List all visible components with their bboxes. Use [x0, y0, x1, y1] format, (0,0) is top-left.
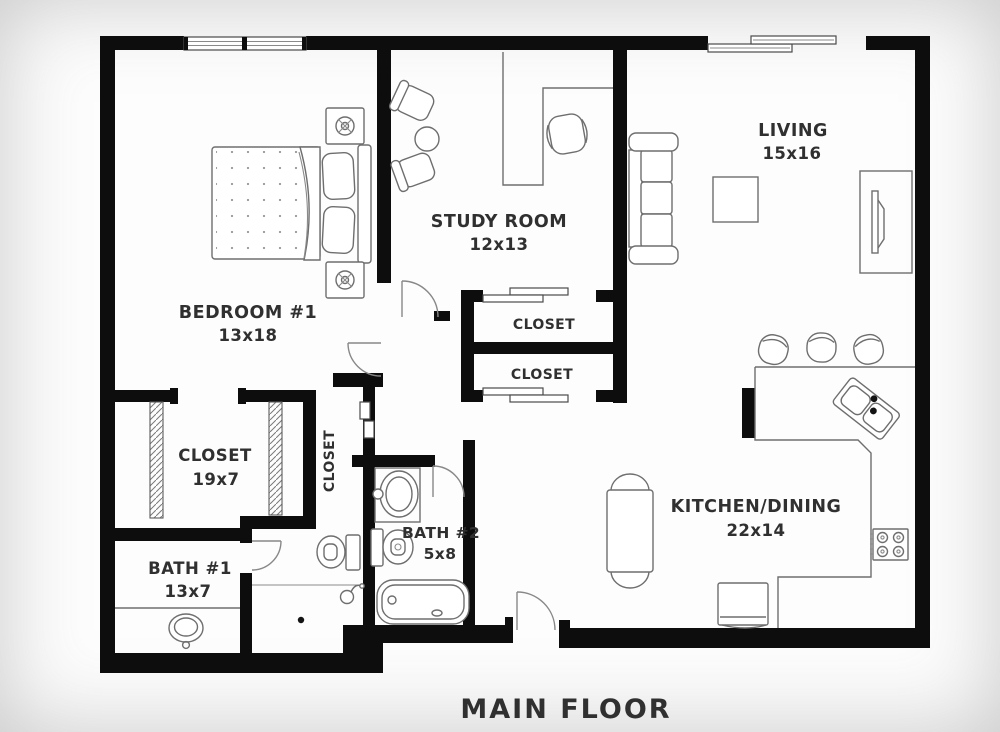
- desk-chair: [544, 112, 590, 156]
- entry-door: [517, 592, 555, 630]
- floor-plan-page: BEDROOM #1 13x18 STUDY ROOM 12x13 LIVING…: [0, 0, 1000, 732]
- bath2-label: BATH #2: [402, 524, 480, 542]
- shower-head: [252, 584, 364, 604]
- closet-upper-label: CLOSET: [513, 317, 575, 333]
- double-kitchen-sink: [832, 377, 901, 441]
- sofa: [629, 133, 678, 264]
- bedroom-window: [184, 37, 306, 50]
- bath2-door: [433, 466, 464, 497]
- shower-drain: [298, 617, 304, 623]
- bar-stool-2: [806, 333, 836, 363]
- patio-sliding-door: [708, 36, 836, 52]
- bathtub: [377, 580, 469, 624]
- nightstand-lamp-top: [326, 108, 364, 144]
- double-bed: [212, 145, 371, 263]
- coffee-table: [713, 177, 758, 222]
- bar-stool-1: [756, 332, 791, 367]
- study-door: [402, 281, 438, 317]
- tv-console: [860, 171, 912, 273]
- bedroom1-label: BEDROOM #1: [179, 303, 317, 323]
- toilet-bath1: [317, 535, 360, 570]
- bar-stool-3: [851, 332, 885, 366]
- refrigerator: [718, 583, 768, 628]
- closet-hall-label: CLOSET: [322, 430, 338, 492]
- study-label: STUDY ROOM: [431, 212, 567, 232]
- bedroom1-dims: 13x18: [218, 326, 277, 345]
- closet-lower-label: CLOSET: [511, 367, 573, 383]
- bedroom-door: [348, 343, 381, 376]
- kitchen-dims: 22x14: [726, 521, 785, 540]
- stove: [870, 529, 908, 560]
- bath2-dims: 5x8: [424, 545, 457, 563]
- living-label: LIVING: [758, 121, 828, 141]
- nightstand-lamp-bottom: [326, 262, 364, 298]
- bath1-door: [252, 541, 281, 570]
- dining-table: [607, 474, 653, 588]
- closet-long-dims: 19x7: [192, 470, 239, 489]
- bath1-label: BATH #1: [148, 559, 232, 578]
- living-dims: 15x16: [762, 144, 821, 163]
- floor-plan-drawing: BEDROOM #1 13x18 STUDY ROOM 12x13 LIVING…: [0, 0, 1000, 732]
- vanity-sink-bath1: [115, 608, 240, 648]
- plan-title: MAIN FLOOR: [460, 694, 671, 725]
- bath1-dims: 13x7: [164, 582, 211, 601]
- closet-long-label: CLOSET: [178, 446, 252, 465]
- lounge-chair-1: [388, 79, 437, 124]
- vanity-sink-bath2: [373, 468, 420, 522]
- study-dims: 12x13: [469, 235, 528, 254]
- kitchen-label: KITCHEN/DINING: [671, 497, 842, 517]
- side-table: [415, 127, 439, 151]
- lounge-chair-2: [390, 149, 438, 192]
